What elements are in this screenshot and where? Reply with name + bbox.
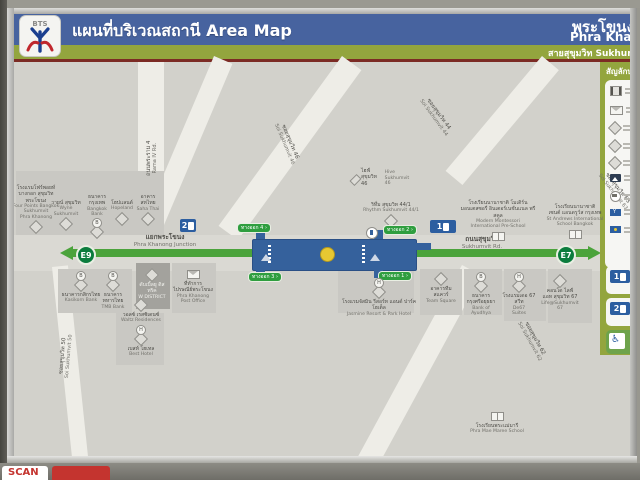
building-diamond-icon [608, 138, 622, 152]
wall-above-sign [0, 0, 640, 8]
person-pictogram-icon [443, 223, 449, 231]
blue-flag-icon [610, 209, 621, 216]
building-diamond-icon [349, 174, 361, 186]
map-place-label: โฮปแลนด์Hopeland [107, 200, 137, 226]
rama4-road-label: ถนนพระราม 4 Rama IV Rd. [146, 128, 158, 188]
legend-exit-marker: 2 [610, 302, 630, 315]
bts-logo-text: BTS [32, 20, 47, 28]
map-place-label: ที่ทำการ ไปรษณีย์พระโขนงPhra Khanong Pos… [171, 268, 215, 305]
place-name-th: คอนโด ไลฟ์ แอท สุขุมวิท 67 [543, 288, 578, 301]
place-name-en: Phra Khanong Post Office [177, 294, 209, 305]
hotel-diamond-icon [608, 156, 622, 170]
legend-item [610, 121, 630, 135]
hotel-icon: H [136, 325, 146, 335]
building-diamond-icon [141, 212, 155, 226]
map-place-label: Hโรงแรมเดอ 67 สวีทDe67 Suites [502, 272, 536, 317]
station-center-dot [320, 247, 335, 262]
legend-text-truncated [623, 160, 630, 166]
legend-exit-marker: 1 [610, 270, 630, 283]
legend-item [610, 139, 630, 153]
place-name-en: Life@Sukhumvit 67 [539, 301, 581, 312]
map-place-label: วอลซ์ เรสซิเดนซ์Waltz Residences [119, 298, 163, 324]
soi-road-label: ซอยสุขุมวิท 44Soi Sukhumvit 44 [416, 92, 457, 141]
place-name-en: Bangkok Bank [87, 207, 107, 218]
bank-diamond-icon [608, 121, 622, 135]
station-walkway [415, 243, 431, 250]
scan-sticker-red-part [52, 466, 110, 480]
road-soi-diagonal-right [446, 56, 559, 185]
landmark-photo-icon [610, 174, 621, 182]
scan-sticker-text: SCAN [8, 467, 39, 478]
map-place-label: ดับเบิ้ลยู ดิสทริคW DISTRICT [135, 268, 169, 300]
place-name-th: ไฮฟ์ สุขุมวิท 46 [361, 168, 383, 187]
frame-left-edge [7, 6, 14, 465]
place-name-en: Team Square [426, 299, 456, 305]
bank-icon: B [108, 271, 118, 281]
person-pictogram-icon [188, 222, 194, 230]
area-map-sign: BTS แผนที่บริเวณสถานี Area Map พระโขนง P… [14, 13, 630, 457]
place-name-en: Jasmine Resort & Park Hotel [347, 312, 411, 318]
station-exit-label: ทางออก 3 › [249, 273, 281, 281]
junction-label: แยกพระโขนง Phra Khanong Junction [120, 234, 210, 248]
line-name: สายสุขุมวิท Sukhumvit Line [548, 46, 630, 60]
map-place-label: ไฮฟ์ สุขุมวิท 46Hive Sukhumvit 46 [352, 168, 412, 187]
hotel-icon: H [374, 278, 384, 288]
place-name-th: ดับเบิ้ลยู ดิสทริค [135, 282, 169, 295]
place-name-th: ที่ทำการ ไปรษณีย์พระโขนง [173, 281, 213, 294]
building-diamond-icon [115, 212, 129, 226]
place-name-th: อาคาร สหไทย [140, 194, 155, 207]
map-place-label: โรงเรียนนานาชาติ เซนต์ แอนดรูว์ส กรุงเทพ… [540, 204, 610, 241]
building-diamond-icon [553, 274, 567, 288]
school-book-icon [491, 412, 504, 421]
numbered-exit-marker: 2 [180, 219, 196, 232]
place-name-th: ธนาคาร กรุงศรีอยุธยา [467, 293, 496, 306]
bank-icon: B [76, 271, 86, 281]
post-office-envelope-icon [610, 106, 623, 115]
photo-of-station-sign: BTS แผนที่บริเวณสถานี Area Map พระโขนง P… [0, 0, 640, 480]
map-place-label: อาคาร สหไทยSaha Thai [134, 194, 162, 226]
place-name-en: Modern Montessori International Pre-Scho… [471, 219, 526, 230]
school-book-icon [569, 230, 582, 239]
post-office-envelope-icon [187, 270, 200, 279]
legend-item [610, 104, 630, 117]
legend-item [610, 174, 630, 182]
bts-logo-graphic: BTS [20, 16, 60, 56]
place-name-en: Kasikorn Bank [65, 298, 97, 304]
place-name-th: อาคารทีม สแควร์ [430, 286, 451, 299]
bank-icon: B [476, 272, 486, 282]
map-place-label: อาคารทีม สแควร์Team Square [424, 272, 458, 304]
map-place-label: ริทึ่ม สุขุมวิท 44/1Rhythm Sukhumvit 44/… [361, 202, 421, 228]
map-place-label: Hเบสท์ โฮเทลBest Hotel [121, 325, 161, 358]
place-name-th: โรงเรียนนานาชาติ โมเดิร์น มอนเตสซอรี่ อิ… [458, 200, 538, 219]
blue-sign-icon [610, 226, 621, 233]
sign-title-en: Area Map [206, 21, 292, 40]
building-diamond-icon [434, 272, 448, 286]
place-name-th: ธนาคาร กรุงเทพ [88, 194, 106, 207]
place-name-en: Hive Sukhumvit 46 [385, 170, 412, 187]
place-name-en: St Andrews International School Bangkok [547, 217, 604, 228]
place-name-th: โรงแรมจัสมิน รีสอร์ท แอนด์ ปาร์ค โฮเต็ล [338, 299, 420, 312]
bank-icon: B [92, 218, 102, 228]
school-book-icon [492, 232, 505, 241]
area-map: แยกพระโขนง Phra Khanong Junction ถนนสุขุ… [14, 62, 630, 457]
place-name-en: Waltz Residences [121, 318, 161, 324]
building-diamond-icon [59, 217, 73, 231]
building-diamond-icon [145, 268, 159, 282]
station-exit-label: ทางออก 4 › [238, 224, 270, 232]
wall-left-of-sign [0, 0, 7, 480]
frame-right-edge [630, 6, 637, 465]
legend-exit-card: 2 [606, 298, 630, 326]
numbered-exit-marker: 1 [430, 220, 456, 233]
building-diamond-icon [134, 298, 148, 312]
hotel-icon: H [514, 272, 524, 282]
place-name-en: Phra Mae Maree School [470, 429, 524, 435]
station-name-en: Phra Khanong [570, 30, 630, 44]
place-name-en: Wyne Sukhumvit [54, 206, 79, 217]
wheelchair-lift-icon [609, 333, 625, 349]
map-place-label: โรงเรียนนานาชาติ โมเดิร์น มอนเตสซอรี่ อิ… [458, 200, 538, 243]
legend-item [610, 191, 630, 202]
map-place-label: วายน์ สุขุมวิทWyne Sukhumvit [49, 200, 83, 231]
stairs-triangle-icon [370, 254, 380, 261]
station-marker-e7: E7 [556, 245, 576, 265]
legend-title: สัญลักษณ์ [606, 65, 630, 78]
legend-item [610, 226, 630, 233]
place-name-en: Best Hotel [129, 352, 153, 358]
stairs-icon [362, 245, 365, 263]
map-place-label: คอนโด ไลฟ์ แอท สุขุมวิท 67Life@Sukhumvit… [539, 274, 581, 312]
postbox-icon [610, 86, 622, 96]
map-place-label: โรงเรียนพระแม่มารีPhra Mae Maree School [465, 410, 529, 435]
header-green-band [14, 45, 630, 59]
legend-text-truncated [623, 125, 630, 131]
lift-icon [366, 227, 378, 239]
station-exit-label: ทางออก 2 › [384, 226, 416, 234]
bus-stop-icon [610, 191, 621, 202]
place-name-en: Hopeland [111, 206, 133, 212]
person-pictogram-icon [620, 273, 626, 281]
bts-logo: BTS [20, 16, 60, 56]
legend-exit-card: 1 [606, 266, 630, 294]
map-place-label: Bธนาคาร กรุงศรีอยุธยาBank of Ayudhya [462, 272, 500, 317]
map-place-label: Hโรงแรมจัสมิน รีสอร์ท แอนด์ ปาร์ค โฮเต็ล… [338, 278, 420, 317]
station-exit-label: ทางออก 1 › [379, 272, 411, 280]
sign-title: แผนที่บริเวณสถานี Area Map [72, 19, 292, 44]
line-arrow-west [60, 246, 73, 260]
soi-road-label: ซอยสุขุมวิท 62Soi Sukhumvit 62 [514, 314, 550, 365]
place-name-th: โรงเรียนนานาชาติ เซนต์ แอนดรูว์ส กรุงเทพ [549, 204, 602, 217]
legend-text-truncated [623, 143, 630, 149]
sign-title-th: แผนที่บริเวณสถานี [72, 21, 201, 40]
legend-item [610, 209, 630, 216]
stairs-triangle-icon [261, 254, 271, 261]
legend-item [610, 156, 630, 170]
place-name-en: Bank of Ayudhya [462, 306, 500, 317]
person-pictogram-icon [620, 305, 626, 313]
legend-item [610, 86, 630, 96]
building-diamond-icon [29, 220, 43, 234]
station-marker-e9: E9 [76, 245, 96, 265]
place-name-th: โรงแรมเดอ 67 สวีท [503, 293, 536, 306]
legend-lift-row [606, 330, 630, 354]
